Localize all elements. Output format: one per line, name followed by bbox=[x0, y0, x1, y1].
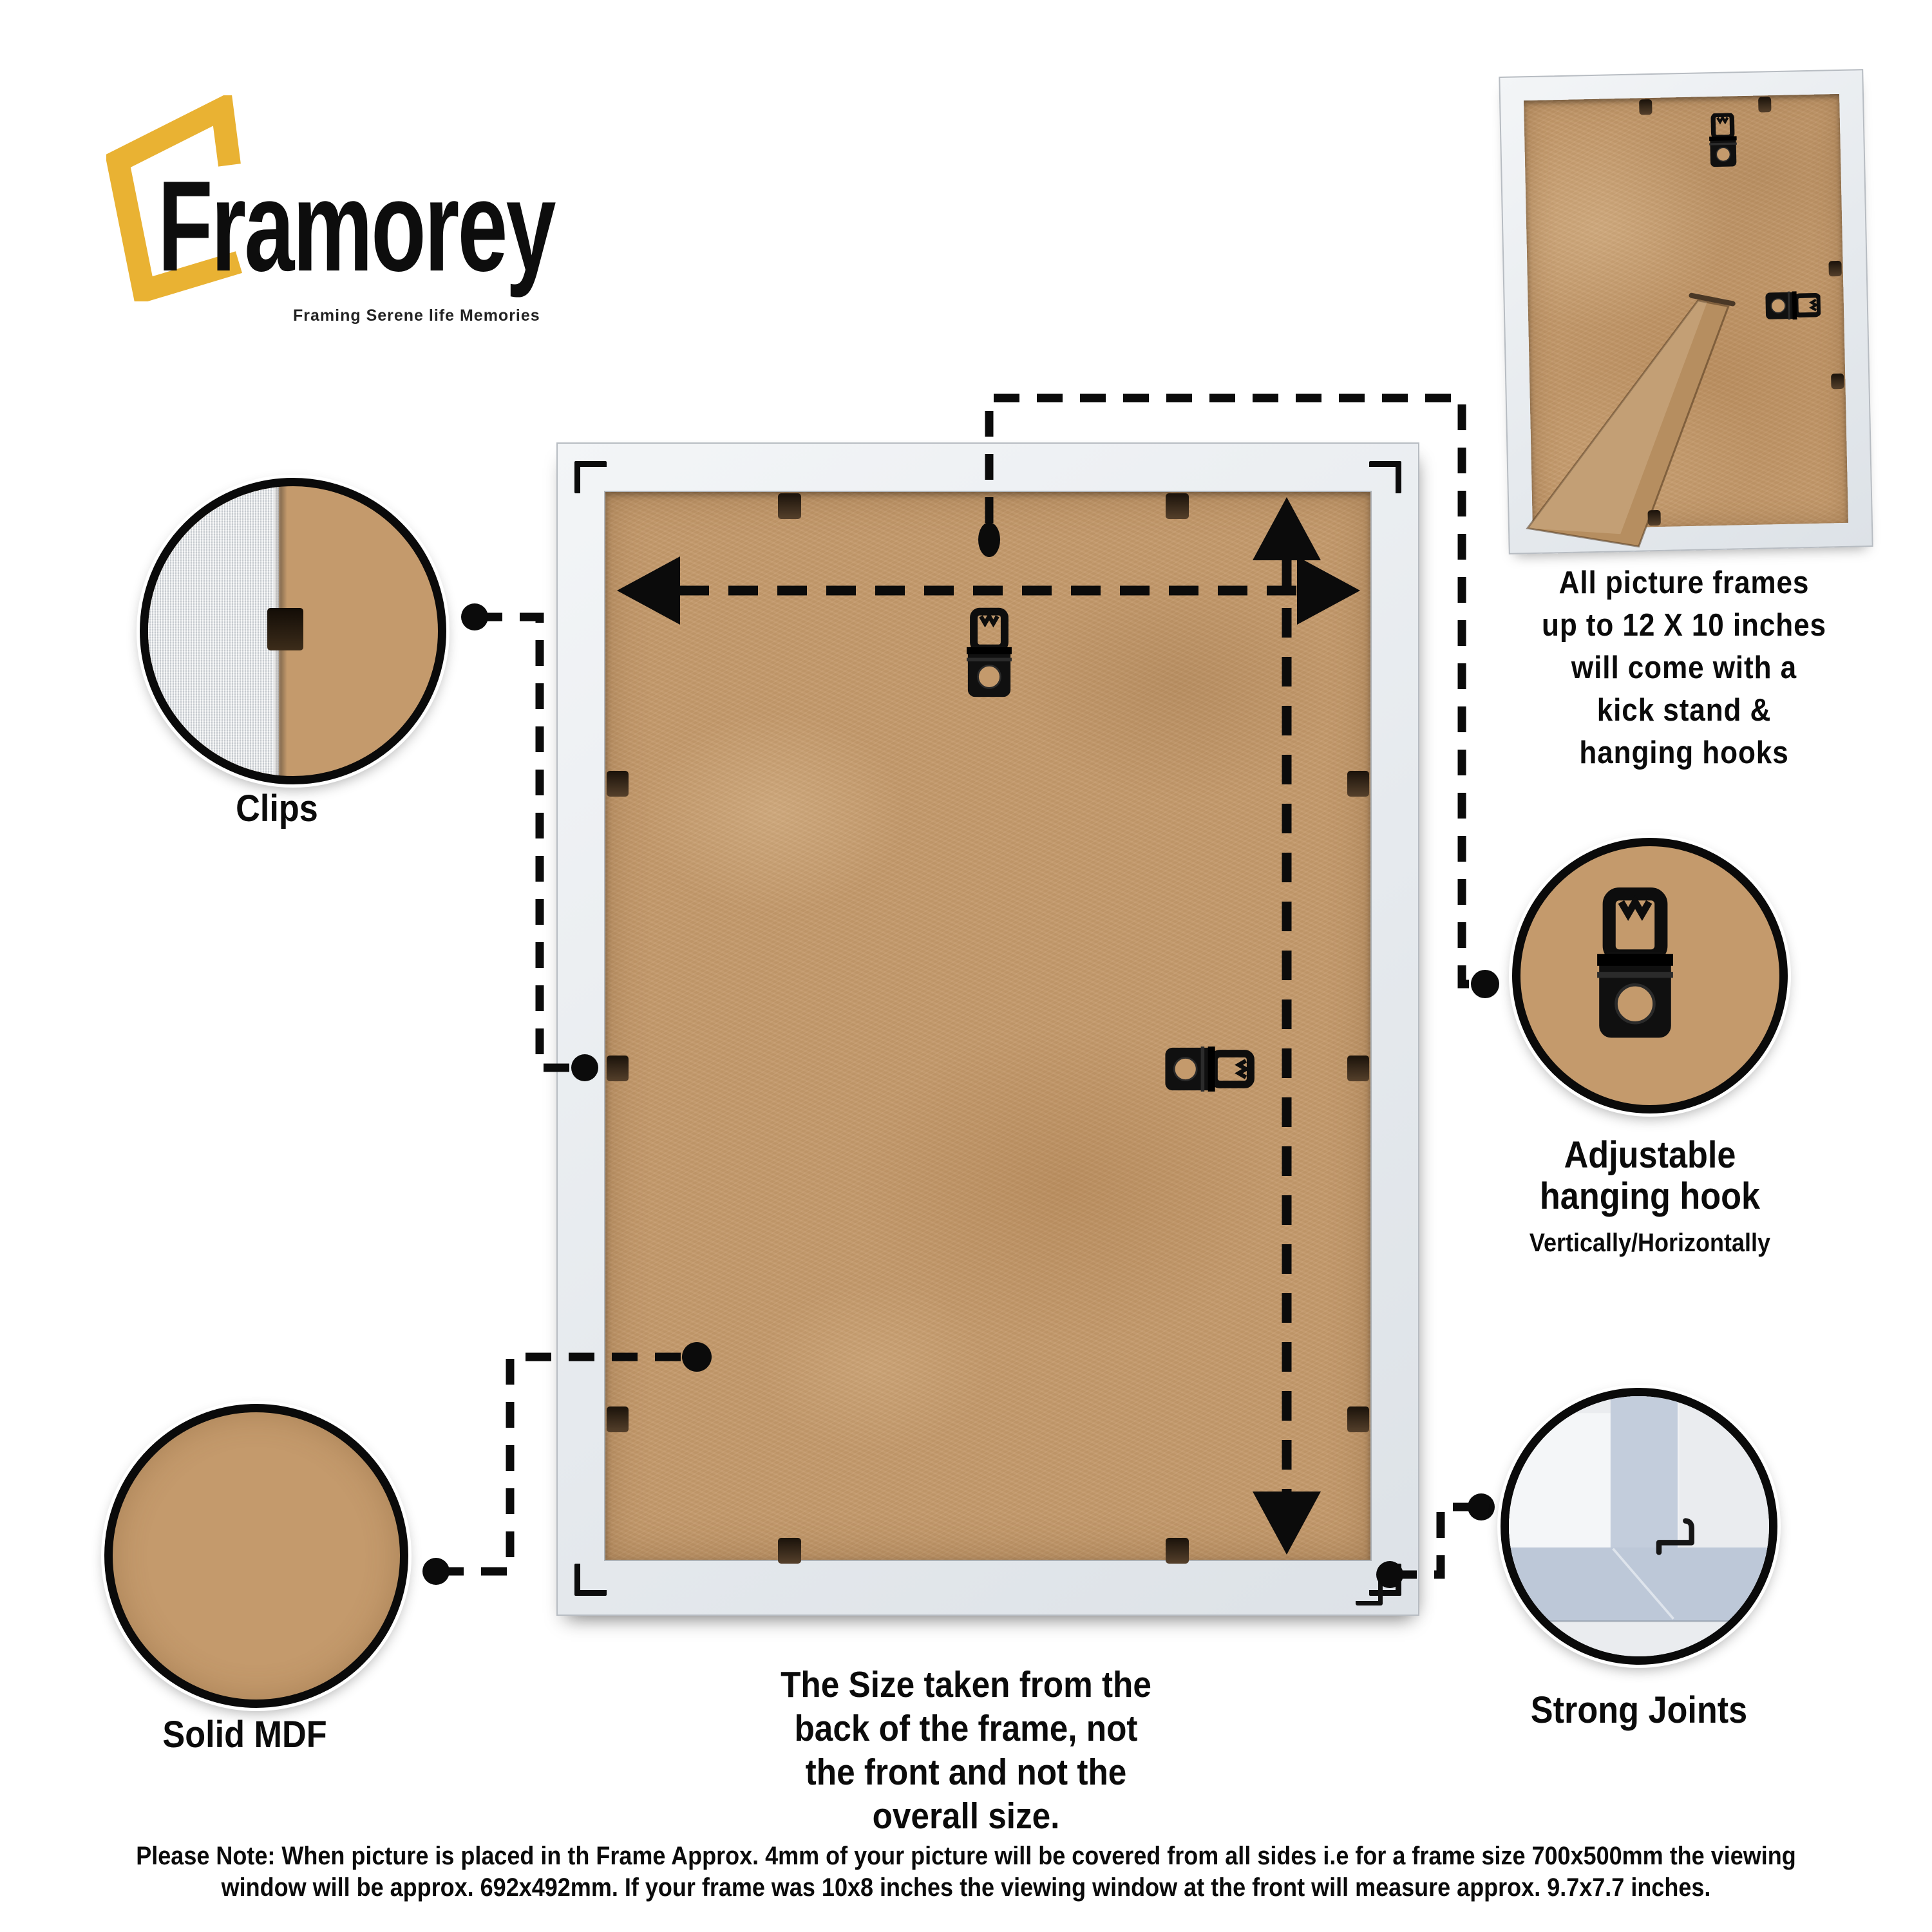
clip-icon bbox=[1828, 261, 1841, 276]
hanging-hook-icon bbox=[1761, 276, 1821, 337]
inset-caption-line: up to 12 X 10 inches bbox=[1496, 604, 1873, 647]
footer-note: Please Note: When picture is placed in t… bbox=[126, 1841, 1806, 1904]
frame-corner-joint bbox=[1509, 1396, 1769, 1656]
clip-icon bbox=[1347, 1406, 1369, 1432]
inset-caption-line: kick stand & bbox=[1496, 689, 1873, 732]
callout-dot bbox=[1471, 970, 1499, 998]
clips-zoom-circle bbox=[140, 478, 446, 784]
size-note-line: back of the frame, not bbox=[676, 1707, 1256, 1750]
brand-name: Framorey bbox=[158, 162, 554, 291]
hanging-hook-label: Adjustable hanging hook bbox=[1476, 1135, 1824, 1217]
clips-label: Clips bbox=[161, 787, 393, 830]
corner-bracket-icon bbox=[574, 461, 607, 493]
backing-board-edge bbox=[148, 486, 279, 776]
main-frame-back bbox=[556, 442, 1419, 1616]
inset-caption-line: All picture frames bbox=[1496, 562, 1873, 604]
strong-joints-label: Strong Joints bbox=[1465, 1689, 1813, 1732]
clip-icon bbox=[607, 1056, 629, 1081]
size-note-line: The Size taken from the bbox=[676, 1663, 1256, 1707]
size-note-line: the front and not the bbox=[676, 1750, 1256, 1794]
hanging-hook-sublabel: Vertically/Horizontally bbox=[1476, 1229, 1824, 1258]
inset-caption: All picture frames up to 12 X 10 inches … bbox=[1496, 562, 1873, 774]
mdf-board bbox=[605, 492, 1370, 1560]
corner-bracket-icon bbox=[1369, 461, 1401, 493]
strong-joints-zoom-circle bbox=[1501, 1388, 1777, 1665]
clip-icon bbox=[1347, 1056, 1369, 1081]
clip-icon bbox=[1647, 510, 1660, 526]
callout-dot bbox=[1468, 1493, 1495, 1520]
inset-caption-line: hanging hooks bbox=[1496, 732, 1873, 774]
hanging-hook-zoom-circle bbox=[1512, 838, 1788, 1113]
hanging-hook-label-line1: Adjustable bbox=[1476, 1135, 1824, 1176]
solid-mdf-zoom-circle bbox=[104, 1404, 408, 1708]
clip-icon bbox=[1831, 374, 1844, 389]
hanging-hook-icon bbox=[1520, 846, 1779, 1105]
hanging-hook-icon bbox=[1705, 113, 1742, 171]
size-note-line: overall size. bbox=[676, 1794, 1256, 1838]
inset-caption-line: will come with a bbox=[1496, 647, 1873, 689]
clip-icon bbox=[1639, 99, 1652, 115]
clip-icon bbox=[267, 608, 303, 650]
callout-dot bbox=[461, 603, 488, 630]
solid-mdf-label: Solid MDF bbox=[71, 1713, 419, 1756]
clip-icon bbox=[607, 771, 629, 797]
inset-frame-with-kickstand bbox=[1499, 69, 1873, 554]
v-nail-icon bbox=[1356, 1578, 1383, 1605]
clip-icon bbox=[778, 493, 801, 519]
corner-bracket-icon bbox=[574, 1564, 607, 1596]
clip-icon bbox=[1166, 1538, 1189, 1564]
clip-icon bbox=[1347, 771, 1369, 797]
logo: Framorey Framing Serene life Memories bbox=[103, 90, 592, 335]
clip-icon bbox=[607, 1406, 629, 1432]
clip-icon bbox=[778, 1538, 801, 1564]
footer-note-line2: window will be approx. 692x492mm. If you… bbox=[126, 1872, 1806, 1904]
callout-dot bbox=[422, 1558, 450, 1585]
footer-note-line1: Please Note: When picture is placed in t… bbox=[126, 1841, 1806, 1872]
clip-icon bbox=[1166, 493, 1189, 519]
hanging-hook-label-line2: hanging hook bbox=[1476, 1176, 1824, 1217]
size-note: The Size taken from the back of the fram… bbox=[676, 1663, 1256, 1838]
clip-icon bbox=[1758, 97, 1771, 112]
brand-tagline: Framing Serene life Memories bbox=[293, 307, 540, 325]
